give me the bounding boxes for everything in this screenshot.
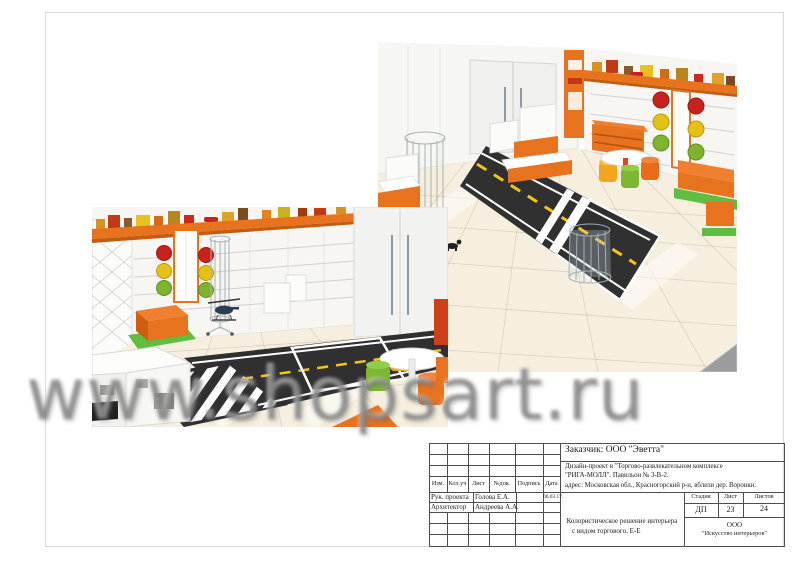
- col-header-data: Дата: [543, 481, 560, 488]
- customer-label: Заказчик: ООО "Эветта": [565, 446, 664, 456]
- wall-mirror-column: [672, 90, 690, 170]
- sheet-number: 23: [718, 506, 743, 514]
- project-description-line3: адрес: Московская обл., Красногорский р-…: [565, 482, 756, 489]
- wall-doorway: [174, 230, 198, 302]
- sheets-total: 24: [743, 505, 785, 513]
- col-header-koluch: Кол.уч: [447, 481, 468, 488]
- col-header-izm: Изм.: [429, 481, 447, 488]
- doc-title-line1: Колористическое решение интерьера: [560, 518, 684, 525]
- traffic-light-decor-1: [653, 92, 669, 151]
- cash-desk: [92, 347, 190, 427]
- sign-row-role-2: Архитектор: [431, 504, 466, 511]
- toy-car: [204, 217, 218, 222]
- company-name-line2: "Искусство интерьеров": [684, 531, 785, 538]
- traffic-light-decor-1: [157, 246, 172, 296]
- title-block: Заказчик: ООО "Эветта" Дизайн-проект в "…: [429, 443, 785, 547]
- drawing-sheet: www.shopsart.ru: [0, 0, 794, 561]
- sign-row-role-1: Рук. проекта: [431, 494, 469, 501]
- wardrobe-doors: [354, 207, 448, 337]
- col-header-list: Лист: [468, 481, 489, 488]
- stage-label: Стадия: [684, 494, 718, 501]
- sign-row-date-1: 06.03.17.: [543, 495, 563, 501]
- sheets-label: Листов: [743, 494, 785, 501]
- sheet-label: Лист: [718, 494, 743, 501]
- stage-value: ДП: [684, 506, 718, 514]
- render-view-shelving: [92, 207, 448, 427]
- doc-title-line2: с видом торгового. Е-Е: [564, 528, 674, 535]
- company-name-line1: ООО: [684, 522, 785, 529]
- round-wire-display: [569, 224, 611, 283]
- project-description-line2: "РИГА-МОЛЛ". Павильон № 3-В-2.: [565, 472, 669, 479]
- col-header-ndok: №док.: [489, 481, 515, 488]
- traffic-light-decor-2: [688, 98, 704, 160]
- sign-row-name-2: Андреева А.А.: [475, 504, 519, 511]
- shelving-scene: [92, 207, 448, 427]
- sign-row-name-1: Голова Е.А.: [475, 494, 510, 501]
- corner-banner: [564, 50, 586, 138]
- col-header-podpis: Подпись: [515, 481, 543, 488]
- project-description-line1: Дизайн-проект в "Торгово-развлекательном…: [565, 463, 723, 470]
